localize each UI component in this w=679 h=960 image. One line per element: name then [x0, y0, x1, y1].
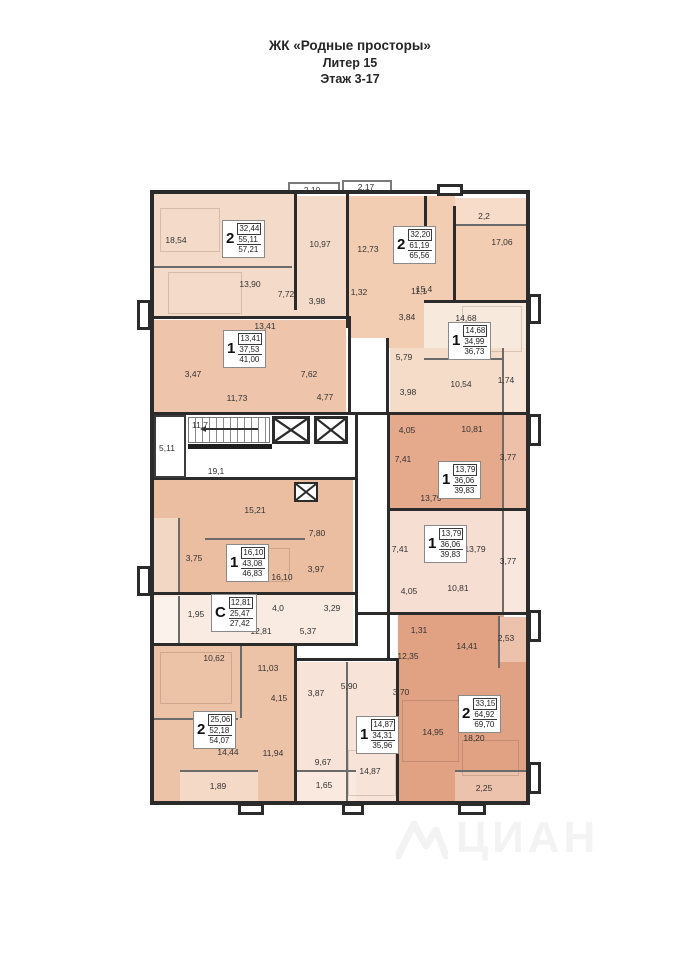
- room-area-label: 2,17: [358, 182, 375, 192]
- room-area-label: 13,79: [464, 544, 485, 554]
- floor-plan-page: ЖК «Родные просторы» Литер 15 Этаж 3-17: [0, 0, 679, 960]
- elevator-shaft: [314, 416, 348, 444]
- apartment-area-value: 13,79: [453, 464, 477, 476]
- vent-shaft: [437, 184, 463, 196]
- room-area-label: 19,1: [208, 466, 225, 476]
- apartment-area-value: 27,42: [229, 619, 253, 629]
- apartment-area-value: 14,68: [463, 325, 487, 337]
- room-area-label: 4,05: [401, 586, 418, 596]
- floor-range: Этаж 3-17: [110, 72, 590, 86]
- watermark-text: ЦИАН: [456, 816, 599, 860]
- room-area-label: 9,67: [315, 757, 332, 767]
- wall: [294, 643, 297, 805]
- apartment-type: 2: [462, 706, 470, 721]
- partition-wall: [455, 770, 527, 772]
- room-area-label: 12,73: [357, 244, 378, 254]
- wall: [357, 612, 530, 615]
- apartment-area-value: 52,18: [208, 726, 232, 737]
- apartment-type: 1: [227, 341, 235, 356]
- apartment-area-value: 14,87: [371, 719, 395, 731]
- wall: [386, 338, 389, 415]
- partition-wall: [178, 518, 180, 593]
- apartment-type: С: [215, 605, 226, 620]
- wall: [154, 316, 348, 319]
- apartment-area-value: 69,70: [473, 720, 497, 730]
- cian-watermark: ЦИАН: [396, 808, 636, 868]
- room-area-label: 7,41: [392, 544, 409, 554]
- room-area-label: 11,94: [263, 748, 284, 758]
- wall: [387, 412, 390, 661]
- apartment-area-value: 37,53: [238, 345, 262, 356]
- room-area-label: 10,97: [309, 239, 330, 249]
- room-area-label: 3,77: [500, 556, 517, 566]
- wall: [150, 412, 530, 415]
- room-area-label: 5,37: [300, 626, 317, 636]
- apartment-areas: 13,4137,5341,00: [238, 333, 262, 365]
- apartment-info-box: 114,8734,3135,96: [356, 716, 399, 754]
- room-area-label: 17,06: [491, 237, 512, 247]
- apartment-area-value: 61,19: [408, 241, 432, 252]
- room-area-label: 11,73: [227, 393, 248, 403]
- apartment-type: 1: [230, 555, 238, 570]
- room-area-label: 10,54: [450, 379, 471, 389]
- apartment-area-value: 55,11: [237, 235, 261, 246]
- staircase-direction-arrow: [206, 428, 258, 430]
- room-area-label: 7,41: [395, 454, 412, 464]
- apartment-area-value: 39,83: [439, 550, 463, 560]
- room-area-label: 2,2: [478, 211, 490, 221]
- room-area-label: 3,29: [324, 603, 341, 613]
- room-area-label: 1,65: [316, 780, 333, 790]
- apartment-area-value: 33,15: [473, 698, 497, 710]
- apartment-info-box: 232,2061,1965,56: [393, 226, 436, 264]
- apartment-area-value: 46,83: [241, 569, 265, 579]
- room-area-label: 3,98: [400, 387, 417, 397]
- room-area-label: 3,47: [185, 369, 202, 379]
- room-area-label: 3,87: [308, 688, 325, 698]
- room-area-label: 10,62: [203, 653, 224, 663]
- furniture-outline: [160, 208, 220, 252]
- apartment-areas: 32,4455,1157,21: [237, 223, 261, 255]
- wall: [348, 316, 351, 415]
- room-area-label: 10,81: [461, 424, 482, 434]
- partition-wall: [205, 538, 305, 540]
- room-area-label: 1,89: [210, 781, 227, 791]
- apartment-zone-top-middle: [348, 270, 386, 338]
- apartment-info-box: 116,1043,0846,83: [226, 544, 269, 582]
- apartment-areas: 33,1564,9269,70: [473, 698, 497, 730]
- apartment-area-value: 16,10: [241, 547, 265, 559]
- apartment-areas: 16,1043,0846,83: [241, 547, 265, 579]
- outer-wall: [526, 190, 530, 805]
- room-area-label: 12,35: [397, 651, 418, 661]
- apartment-area-value: 36,06: [453, 476, 477, 487]
- apartment-area-value: 12,81: [229, 597, 253, 609]
- elevator-shaft: [272, 416, 310, 444]
- apartment-area-value: 25,06: [208, 714, 232, 726]
- cian-logo-icon: [396, 816, 448, 860]
- apartment-areas: 25,0652,1854,07: [208, 714, 232, 746]
- room-area-label: 5,90: [341, 681, 358, 691]
- partition-wall: [240, 646, 242, 718]
- wall: [453, 206, 456, 302]
- room-area-label: 5,11: [159, 443, 175, 453]
- room-area-label: 2,25: [476, 783, 493, 793]
- plan-title: ЖК «Родные просторы» Литер 15 Этаж 3-17: [110, 38, 590, 88]
- apartment-areas: 12,8125,4727,42: [229, 597, 253, 629]
- room-area-label: 14,41: [456, 641, 477, 651]
- outer-wall: [150, 190, 154, 805]
- apartment-areas: 13,7936,0639,83: [439, 528, 463, 560]
- apartment-info-box: 113,7936,0639,83: [424, 525, 467, 563]
- apartment-info-box: 114,6834,9936,73: [448, 322, 491, 360]
- apartment-area-value: 36,73: [463, 347, 487, 357]
- loggia-zone-2-2: [455, 198, 528, 224]
- apartment-area-value: 36,06: [439, 540, 463, 551]
- room-area-label: 3,97: [308, 564, 325, 574]
- room-area-label: 1,74: [498, 375, 515, 385]
- room-area-label: 3,77: [500, 452, 517, 462]
- apartment-area-value: 32,44: [237, 223, 261, 235]
- apartment-info-box: 233,1564,9269,70: [458, 695, 501, 733]
- room-area-label: 3,70: [393, 687, 410, 697]
- room-area-label: 11,1: [411, 286, 427, 296]
- apartment-area-value: 64,92: [473, 710, 497, 721]
- partition-wall: [502, 414, 504, 614]
- partition-wall: [154, 266, 292, 268]
- room-area-label: 4,05: [399, 425, 416, 435]
- room-area-label: 1,31: [411, 625, 428, 635]
- vent-shaft: [528, 610, 541, 642]
- room-area-label: 11,03: [258, 663, 279, 673]
- room-area-label: 3,84: [399, 312, 416, 322]
- apartment-area-value: 39,83: [453, 486, 477, 496]
- vent-shaft: [137, 300, 151, 330]
- complex-name: ЖК «Родные просторы»: [110, 38, 590, 53]
- service-shaft: [294, 482, 318, 502]
- apartment-area-value: 34,31: [371, 731, 395, 742]
- room-area-label: 15,21: [244, 505, 265, 515]
- room-area-label: 10,81: [447, 583, 468, 593]
- apartment-zone-top-middle: [386, 302, 424, 348]
- wall: [355, 412, 358, 646]
- vent-shaft: [238, 803, 264, 815]
- apartment-info-box: 113,4137,5341,00: [223, 330, 266, 368]
- loggia-zone-3-75: [154, 518, 178, 592]
- apartment-type: 2: [197, 722, 205, 737]
- apartment-area-value: 57,21: [237, 245, 261, 255]
- apartment-type: 1: [452, 333, 460, 348]
- wall: [390, 508, 530, 511]
- room-area-label: 3,98: [309, 296, 326, 306]
- apartment-areas: 14,8734,3135,96: [371, 719, 395, 751]
- apartment-area-value: 25,47: [229, 609, 253, 620]
- room-area-label: 13,90: [239, 279, 260, 289]
- room-area-label: 4,0: [272, 603, 284, 613]
- apartment-area-value: 54,07: [208, 736, 232, 746]
- apartment-areas: 14,6834,9936,73: [463, 325, 487, 357]
- apartment-areas: 13,7936,0639,83: [453, 464, 477, 496]
- vent-shaft: [528, 294, 541, 324]
- apartment-areas: 32,2061,1965,56: [408, 229, 432, 261]
- room-area-label: 5,79: [396, 352, 413, 362]
- room-area-label: 7,62: [301, 369, 318, 379]
- apartment-area-value: 65,56: [408, 251, 432, 261]
- apartment-area-value: 35,96: [371, 741, 395, 751]
- room-area-label: 7,72: [278, 289, 295, 299]
- room-area-label: 7,80: [309, 528, 326, 538]
- partition-wall: [180, 770, 258, 772]
- apartment-info-box: 225,0652,1854,07: [193, 711, 236, 749]
- building-liter: Литер 15: [110, 56, 590, 70]
- furniture-outline: [168, 272, 242, 314]
- loggia-zone-1-95: [154, 597, 178, 643]
- room-area-label: 14,87: [359, 766, 380, 776]
- apartment-info-box: 113,7936,0639,83: [438, 461, 481, 499]
- room-area-label: 18,54: [165, 235, 186, 245]
- room-area-label: 18,20: [463, 733, 484, 743]
- room-area-label: 2,10: [304, 185, 321, 195]
- vent-shaft: [137, 566, 151, 596]
- apartment-area-value: 13,79: [439, 528, 463, 540]
- room-area-label: 11,7: [192, 420, 208, 430]
- room-area-label: 1,95: [188, 609, 205, 619]
- vent-shaft: [528, 762, 541, 794]
- wall: [154, 643, 357, 646]
- outer-wall: [150, 190, 530, 194]
- partition-wall: [178, 596, 180, 643]
- partition-wall: [455, 224, 528, 226]
- wall: [296, 658, 398, 661]
- vent-shaft: [342, 803, 364, 815]
- apartment-area-value: 34,99: [463, 337, 487, 348]
- apartment-area-value: 41,00: [238, 355, 262, 365]
- apartment-type: 1: [442, 472, 450, 487]
- apartment-type: 2: [226, 231, 234, 246]
- apartment-zone-top-left: [294, 196, 346, 312]
- staircase-rail: [188, 444, 272, 449]
- apartment-type: 1: [428, 536, 436, 551]
- apartment-type: 2: [397, 237, 405, 252]
- room-area-label: 16,10: [271, 572, 292, 582]
- apartment-info-box: 232,4455,1157,21: [222, 220, 265, 258]
- apartment-area-value: 32,20: [408, 229, 432, 241]
- apartment-area-value: 13,41: [238, 333, 262, 345]
- room-area-label: 4,77: [317, 392, 334, 402]
- room-area-label: 1,32: [351, 287, 368, 297]
- apartment-info-box: С12,8125,4727,42: [211, 594, 257, 632]
- wall: [424, 300, 530, 303]
- apartment-type: 1: [360, 727, 368, 742]
- room-area-label: 3,75: [186, 553, 203, 563]
- room-area-label: 2,53: [498, 633, 515, 643]
- wall: [346, 194, 349, 328]
- room-area-label: 14,95: [422, 727, 443, 737]
- room-area-label: 4,15: [271, 693, 288, 703]
- vent-shaft: [528, 414, 541, 446]
- apartment-area-value: 43,08: [241, 559, 265, 570]
